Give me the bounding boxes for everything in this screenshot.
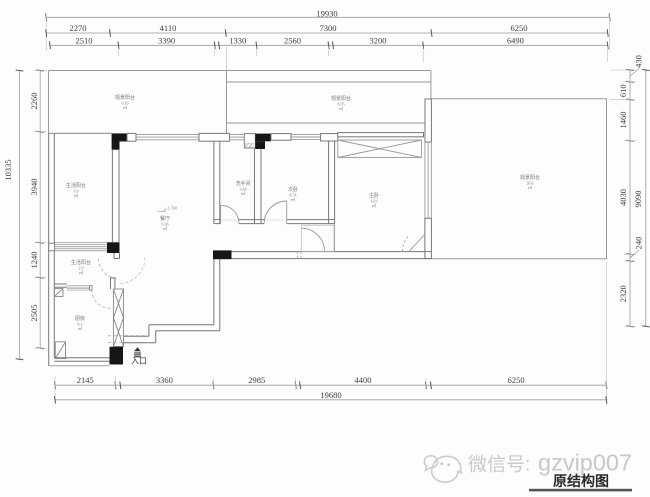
- svg-text:2510: 2510: [76, 35, 93, 45]
- svg-text:4110: 4110: [160, 23, 177, 33]
- svg-text:㎡: ㎡: [79, 269, 83, 275]
- svg-text:6250: 6250: [508, 375, 525, 385]
- svg-text:微信号:: 微信号:: [468, 454, 530, 476]
- svg-text:㎡: ㎡: [74, 192, 78, 198]
- svg-text:2505: 2505: [29, 305, 39, 322]
- svg-text:㎡: ㎡: [291, 196, 295, 202]
- svg-text:19680: 19680: [320, 390, 341, 400]
- svg-text:10335: 10335: [3, 159, 13, 180]
- svg-text:1330: 1330: [229, 35, 246, 45]
- svg-text:㎡: ㎡: [528, 184, 532, 190]
- svg-text:1460: 1460: [618, 112, 628, 129]
- svg-text:4400: 4400: [355, 375, 372, 385]
- svg-text:2.700: 2.700: [167, 206, 178, 211]
- svg-text:原结构图: 原结构图: [553, 473, 609, 489]
- svg-text:4030: 4030: [618, 189, 628, 206]
- svg-text:2145: 2145: [77, 375, 94, 385]
- svg-text:㎡: ㎡: [78, 325, 82, 331]
- svg-text:㎡: ㎡: [163, 225, 167, 231]
- svg-text:240: 240: [634, 237, 644, 250]
- svg-text:610: 610: [618, 84, 628, 97]
- svg-text:19930: 19930: [316, 9, 337, 19]
- svg-text:2260: 2260: [29, 93, 39, 110]
- svg-text:3360: 3360: [156, 375, 173, 385]
- svg-text:3390: 3390: [158, 35, 175, 45]
- svg-text:3940: 3940: [29, 179, 39, 196]
- svg-text:7300: 7300: [320, 23, 337, 33]
- svg-text:9090: 9090: [633, 191, 643, 208]
- svg-text:㎡: ㎡: [372, 202, 376, 208]
- svg-text:6490: 6490: [507, 35, 524, 45]
- svg-text:3200: 3200: [370, 35, 387, 45]
- svg-text:㎡: ㎡: [241, 190, 245, 196]
- svg-text:2320: 2320: [618, 285, 628, 302]
- svg-text:gzvip007: gzvip007: [538, 450, 632, 476]
- svg-text:2270: 2270: [70, 23, 87, 33]
- svg-text:㎡: ㎡: [123, 104, 127, 110]
- svg-text:㎡: ㎡: [339, 105, 343, 111]
- svg-text:2985: 2985: [248, 375, 265, 385]
- svg-text:入口: 入口: [131, 357, 147, 366]
- svg-text:2560: 2560: [284, 35, 301, 45]
- svg-text:430: 430: [634, 55, 644, 68]
- svg-text:1240: 1240: [29, 252, 39, 269]
- svg-text:6250: 6250: [511, 23, 528, 33]
